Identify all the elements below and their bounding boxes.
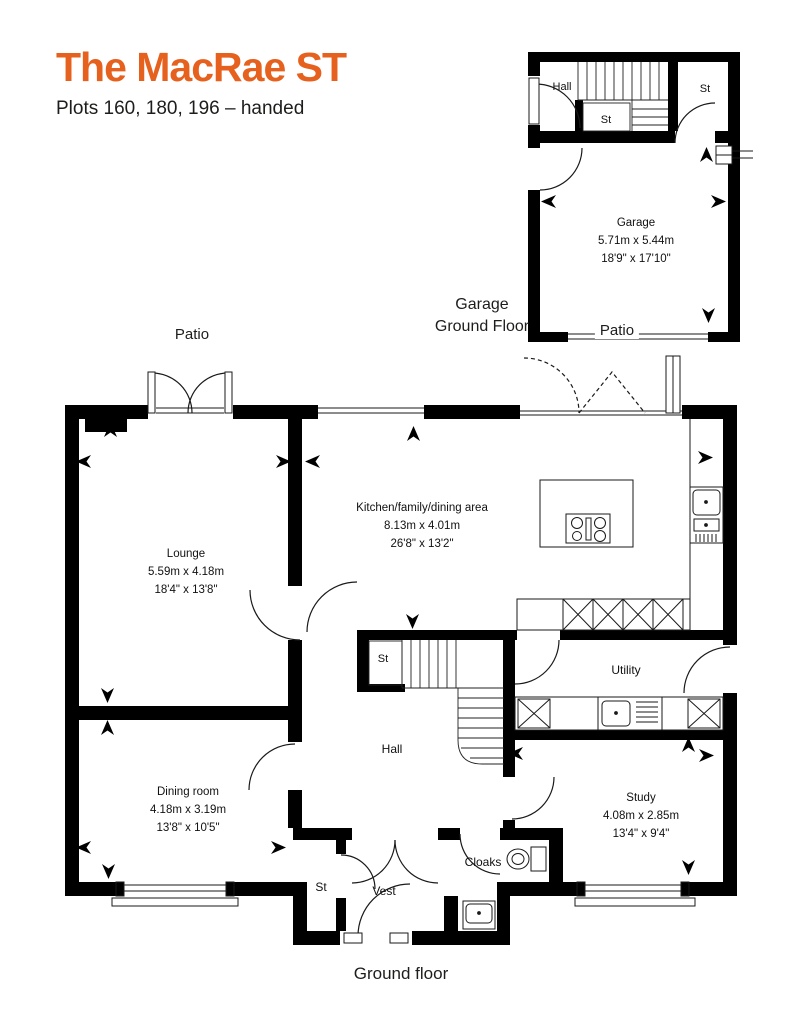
study-window-sill [575, 898, 695, 906]
french-door-leaf [148, 372, 155, 413]
wall [293, 828, 352, 840]
ground-floor-caption: Ground floor [354, 964, 449, 984]
store-door-arc [341, 855, 375, 889]
wall [528, 52, 540, 76]
kitchen-fixtures [517, 419, 723, 630]
wall [336, 840, 346, 854]
basin [463, 901, 495, 929]
study-window [585, 885, 681, 891]
wall [549, 828, 563, 882]
utility-worktop [515, 697, 723, 730]
wall [540, 131, 675, 143]
utility-external-door-arc [684, 647, 730, 693]
page-title: The MacRae ST [56, 44, 346, 91]
wall [65, 706, 302, 720]
page-subtitle: Plots 160, 180, 196 – handed [56, 98, 304, 120]
kitchen-imperial: 26'8" x 13'2" [356, 535, 488, 553]
wall [668, 62, 678, 131]
garage-hall-window [529, 78, 539, 124]
french-door-arc [152, 373, 192, 413]
garage-caption-line1: Garage [455, 296, 508, 313]
dining-name: Dining room [150, 783, 226, 801]
stair-treads [458, 698, 504, 758]
wall [723, 693, 737, 896]
wall [424, 405, 520, 419]
direction-arrow [305, 455, 320, 468]
garage-store-label: St [700, 83, 710, 95]
utility-sink [598, 697, 662, 730]
floorplan-page: The MacRae ST Plots 160, 180, 196 – hand… [0, 0, 800, 1036]
wall [65, 405, 148, 419]
garage-side-door-arc [540, 148, 582, 190]
dining-window [122, 885, 228, 891]
wall [293, 931, 340, 945]
wall [560, 630, 723, 640]
wall [288, 640, 302, 742]
bifold-panel [673, 356, 680, 413]
wall [528, 190, 540, 342]
bifold-threshold [520, 411, 682, 415]
stair-treads [411, 640, 456, 688]
wall [683, 882, 737, 896]
wall [357, 684, 405, 692]
direction-arrow [101, 720, 114, 735]
garage-room-imperial: 18'9" x 17'10" [598, 250, 674, 268]
utility-fixtures [515, 697, 723, 730]
kitchen-sink [690, 487, 723, 543]
hall-label: Hall [382, 742, 403, 756]
lounge-label: Lounge 5.59m x 4.18m 18'4" x 13'8" [148, 545, 224, 599]
staircase-garage [578, 62, 668, 131]
vest-door-arc [395, 840, 438, 883]
utility-label: Utility [611, 663, 640, 677]
kitchen-island [540, 480, 633, 547]
hob [566, 514, 610, 543]
vest-label: Vest [372, 884, 395, 898]
wall [528, 125, 540, 148]
direction-arrow [541, 195, 556, 208]
lounge-door-arc [250, 590, 300, 640]
dining-metric: 4.18m x 3.19m [150, 801, 226, 819]
kitchen-metric: 8.13m x 4.01m [356, 517, 488, 535]
bifold-door-arc [524, 358, 579, 413]
kitchen-door-arc [307, 582, 357, 632]
dining-window-sill [112, 898, 238, 906]
store-label: St [315, 880, 326, 894]
appliance-space [518, 699, 550, 728]
lounge-metric: 5.59m x 4.18m [148, 563, 224, 581]
wall [357, 630, 517, 640]
direction-arrow [699, 749, 714, 762]
front-door-frame [344, 933, 362, 943]
bifold-fold-lines [579, 372, 645, 413]
garage-patio-label: Patio [595, 322, 639, 339]
lounge-imperial: 18'4" x 13'8" [148, 581, 224, 599]
front-door-frame [390, 933, 408, 943]
garage-room-label: Garage 5.71m x 5.44m 18'9" x 17'10" [598, 214, 674, 268]
wall [288, 790, 302, 828]
stairs-store-label: St [378, 653, 388, 665]
dining-door-arc [249, 744, 295, 790]
wall [233, 405, 318, 419]
vest-door-arc [352, 840, 395, 883]
french-door-leaf [225, 372, 232, 413]
wall [438, 828, 460, 840]
study-label: Study 4.08m x 2.85m 13'4" x 9'4" [603, 789, 679, 843]
direction-arrow [406, 614, 419, 629]
french-door-threshold [156, 408, 224, 413]
kitchen-window [318, 408, 424, 413]
wall [528, 332, 568, 342]
direction-arrow [711, 195, 726, 208]
direction-arrow [702, 308, 715, 323]
wall [412, 931, 510, 945]
stair-treads [632, 100, 668, 131]
study-door-arc [512, 777, 554, 819]
kitchen-name: Kitchen/family/dining area [356, 499, 488, 517]
garage-store-door-arc [675, 103, 715, 143]
wall [65, 405, 79, 896]
direction-arrow [271, 841, 286, 854]
wall [575, 100, 583, 131]
wall [65, 882, 120, 896]
wall [336, 898, 346, 931]
utility-door-arc [515, 640, 559, 684]
direction-arrow [682, 860, 695, 875]
toilet [507, 847, 546, 871]
bifold-panel [666, 356, 673, 413]
direction-arrow [698, 451, 713, 464]
wall [715, 131, 728, 143]
cloaks-label: Cloaks [465, 855, 502, 869]
kitchen-label: Kitchen/family/dining area 8.13m x 4.01m… [356, 499, 488, 553]
garage-room-name: Garage [598, 214, 674, 232]
garage-under-stairs-store-label: St [601, 114, 611, 126]
study-metric: 4.08m x 2.85m [603, 807, 679, 825]
appliance-space [688, 699, 720, 728]
wall [288, 405, 302, 586]
wall [444, 896, 458, 931]
study-imperial: 13'4" x 9'4" [603, 825, 679, 843]
dining-label: Dining room 4.18m x 3.19m 13'8" x 10'5" [150, 783, 226, 837]
wall [528, 52, 740, 62]
lounge-name: Lounge [148, 545, 224, 563]
wall [357, 640, 369, 690]
dining-imperial: 13'8" x 10'5" [150, 819, 226, 837]
main-patio-label: Patio [175, 326, 209, 343]
study-name: Study [603, 789, 679, 807]
kitchen-units [517, 599, 690, 630]
direction-arrow [407, 426, 420, 441]
wall [503, 730, 737, 740]
wall [723, 405, 737, 645]
direction-arrow [101, 688, 114, 703]
garage-caption-line2: Ground Floor [435, 318, 529, 335]
wall [708, 332, 740, 342]
wall [728, 52, 740, 342]
direction-arrow [700, 147, 713, 162]
french-door-arc [188, 373, 228, 413]
direction-arrow [102, 864, 115, 879]
wall [85, 419, 127, 432]
wall [497, 896, 510, 931]
garage-room-metric: 5.71m x 5.44m [598, 232, 674, 250]
garage-hall-label: Hall [553, 81, 572, 93]
wall [503, 820, 515, 828]
stair-treads [587, 62, 659, 100]
wall [497, 882, 563, 896]
garage-plan-caption: Garage Ground Floor [435, 294, 529, 338]
